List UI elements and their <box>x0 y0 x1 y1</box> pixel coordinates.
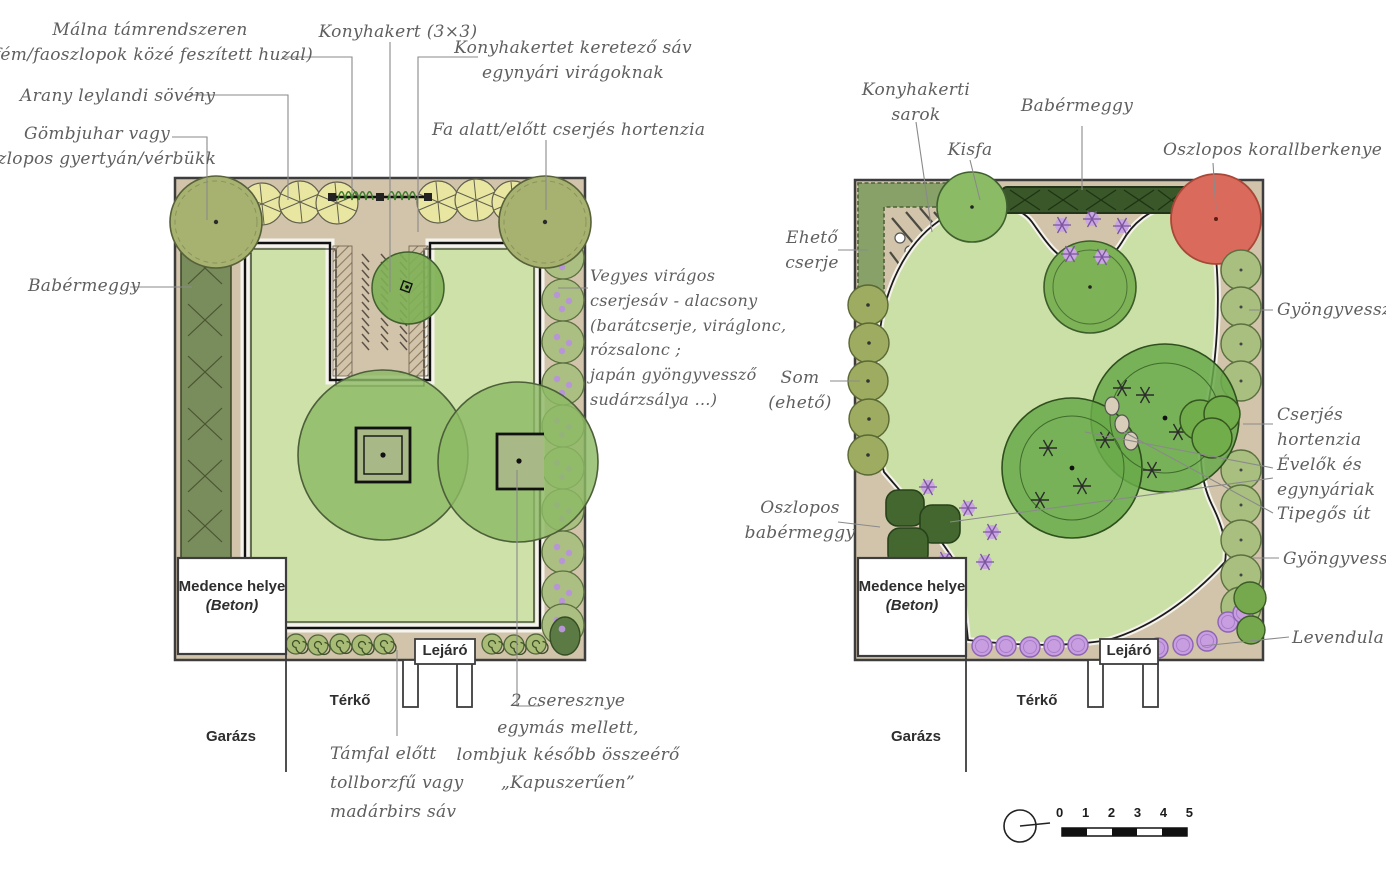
pool-material-right: (Beton) <box>886 597 939 614</box>
annotation-cherry-laurel-left: Babérmeggy <box>28 274 140 299</box>
scale-bar <box>1062 828 1187 836</box>
annotation-edible-shrub: Ehető cserje <box>785 226 839 275</box>
scale-tick: 2 <box>1108 805 1115 820</box>
stepping-stone <box>1105 397 1119 415</box>
stairs-label-right: Lejáró <box>1106 642 1151 659</box>
annotation-cherry-laurel-top: Babérmeggy <box>1021 94 1133 119</box>
annotation-stepping-path: Tipegős út <box>1277 502 1371 527</box>
paving-label-right: Térkő <box>1017 692 1058 709</box>
annotation-two-cherries: 2 cseresznye egymás mellett, lombjuk kés… <box>456 688 679 797</box>
scale-tick: 0 <box>1056 805 1063 820</box>
paving-label-left: Térkő <box>330 692 371 709</box>
annotation-cornelian-cherry: Som (ehető) <box>768 366 832 415</box>
annotation-raspberry-trellis: Málna támrendszeren (fém/faoszlopok közé… <box>0 18 313 67</box>
annotation-globe-maple: Gömbjuhar vagy oszlopos gyertyán/vérbükk <box>0 122 216 171</box>
garage-label-right: Garázs <box>891 728 941 745</box>
garage-label-left: Garázs <box>206 728 256 745</box>
pool-label-right: Medence helye <box>859 578 966 595</box>
annotation-leyland-hedge: Arany leylandi sövény <box>20 84 215 109</box>
annotation-hortensia-under-tree: Fa alatt/előtt cserjés hortenzia <box>432 118 705 143</box>
north-arrow-icon <box>1004 810 1050 842</box>
stairs-label-left: Lejáró <box>422 642 467 659</box>
scale-tick: 3 <box>1134 805 1141 820</box>
annotation-perennials: Évelők és egynyáriak <box>1277 453 1375 502</box>
stair-channel <box>1088 660 1103 707</box>
scale-tick: 4 <box>1160 805 1167 820</box>
annotation-shrub-hortensia: Cserjés hortenzia <box>1277 403 1361 452</box>
annotation-columnar-laurel: Oszlopos babérmeggy <box>745 496 856 545</box>
scale-tick: 1 <box>1082 805 1089 820</box>
garden-plan-page: { "left_plan": { "annotations": { "malna… <box>0 0 1386 892</box>
pool-label-left: Medence helye <box>179 578 286 595</box>
middle-tree <box>1044 241 1136 333</box>
annotation-kitchen-corner: Konyhakerti sarok <box>862 78 970 127</box>
pool-material-left: (Beton) <box>206 597 259 614</box>
annotation-framing-strip: Konyhakertet keretező sáv egynyári virág… <box>454 36 692 85</box>
right-plan <box>830 122 1289 772</box>
scale-bar-ticks: 0 1 2 3 4 5 <box>1056 805 1193 820</box>
left-hedge-band <box>181 240 231 558</box>
left-corner-tree <box>170 176 262 268</box>
stair-channel <box>403 660 418 707</box>
annotation-spiraea-upper: Gyöngyvessző <box>1277 298 1386 323</box>
small-tree <box>937 172 1007 242</box>
som-column <box>848 285 889 475</box>
stepping-stone <box>1115 415 1129 433</box>
annotation-mixed-shrub-strip: Vegyes virágos cserjesáv - alacsony (bar… <box>590 264 786 413</box>
annotation-spiraea-lower: Gyöngyvessző <box>1283 547 1386 572</box>
annotation-lavender: Levendula <box>1292 626 1384 651</box>
right-corner-tree <box>499 176 591 268</box>
annotation-coral-rowan: Oszlopos korallberkenye <box>1163 138 1382 163</box>
stair-channel <box>1143 660 1158 707</box>
annotation-retaining-wall-strip: Támfal előtt tollborzfű vagy madárbirs s… <box>330 740 464 827</box>
scale-tick: 5 <box>1186 805 1193 820</box>
annotation-small-tree: Kisfa <box>948 138 993 163</box>
laurel-hedge <box>1002 187 1190 213</box>
